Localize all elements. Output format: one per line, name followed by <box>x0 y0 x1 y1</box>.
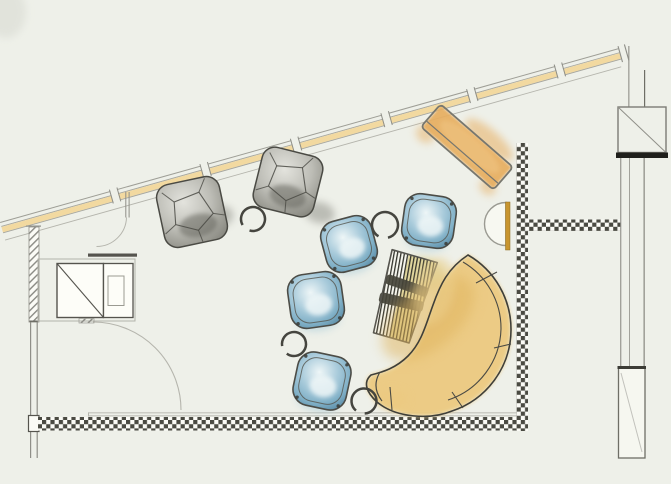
cabinet-top-bar <box>88 254 137 257</box>
floor-plan-drawing <box>0 0 671 484</box>
tub-chair-2 <box>399 192 458 255</box>
console-half-circle <box>485 203 507 246</box>
console-gold-bar <box>506 202 511 250</box>
furniture <box>154 92 525 419</box>
wall-junction-post <box>29 416 40 432</box>
column-diagonal <box>618 107 666 153</box>
column-black-bar <box>616 153 668 159</box>
tub-chair-4 <box>289 349 354 417</box>
partition-checker <box>528 220 621 232</box>
door-swing-arc-small <box>97 218 127 247</box>
threshold-tick <box>79 319 94 324</box>
cabinet-unit <box>38 254 137 324</box>
tub-chair-3 <box>286 270 348 335</box>
cube-pouf-1 <box>154 172 238 250</box>
door-swing-arc <box>93 322 181 410</box>
hatched-partition-wall <box>517 143 622 431</box>
corner-smudge <box>0 0 26 38</box>
partition-checker <box>517 143 529 431</box>
half-round-console <box>485 202 511 250</box>
side-table-3 <box>280 330 308 358</box>
table-ring <box>280 330 308 358</box>
bottom-wall <box>38 412 523 430</box>
floor-plan-canvas <box>0 0 671 484</box>
right-wall <box>616 46 668 458</box>
entry-door-swing <box>93 322 181 410</box>
bottom-wall-checker <box>38 417 523 431</box>
pouf-body <box>154 174 230 250</box>
